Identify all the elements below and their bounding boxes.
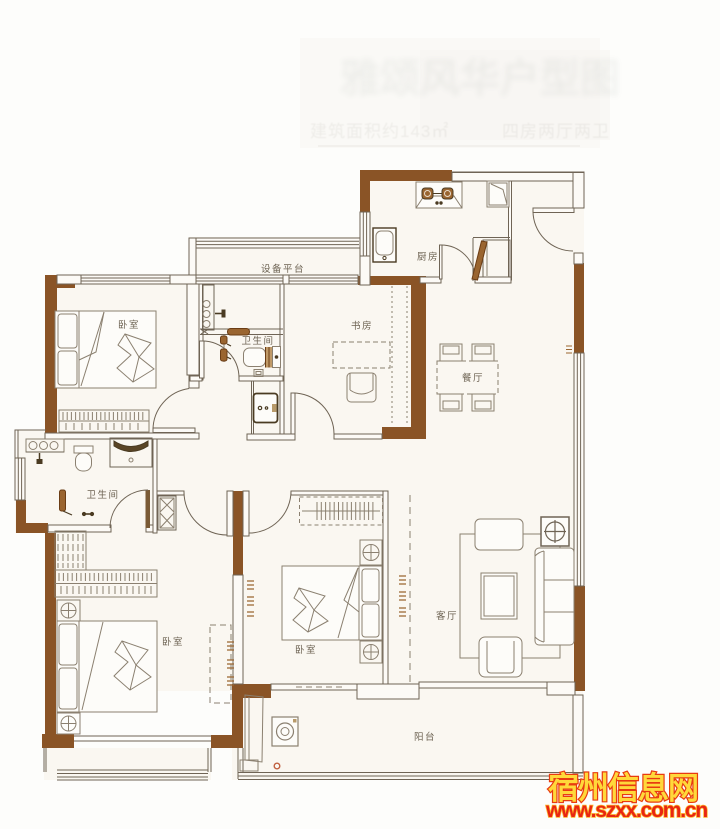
svg-text:卧室: 卧室 <box>118 319 140 331</box>
svg-text:卫生间: 卫生间 <box>86 489 119 501</box>
svg-text:餐厅: 餐厅 <box>462 372 484 384</box>
svg-text:卫生间: 卫生间 <box>241 335 274 347</box>
svg-text:卧室: 卧室 <box>162 636 184 648</box>
svg-text:阳台: 阳台 <box>414 731 436 743</box>
svg-text:书房: 书房 <box>351 320 373 332</box>
svg-text:设备平台: 设备平台 <box>261 263 305 275</box>
svg-text:www.szxx.com.cn: www.szxx.com.cn <box>545 799 707 822</box>
svg-text:卧室: 卧室 <box>295 644 317 656</box>
svg-text:雅颂风华户型图: 雅颂风华户型图 <box>340 57 620 101</box>
svg-text:建筑面积约143㎡: 建筑面积约143㎡ <box>310 122 449 141</box>
svg-text:厨房: 厨房 <box>417 251 439 263</box>
svg-text:四房两厅两卫: 四房两厅两卫 <box>502 122 610 141</box>
svg-text:客厅: 客厅 <box>436 610 458 622</box>
